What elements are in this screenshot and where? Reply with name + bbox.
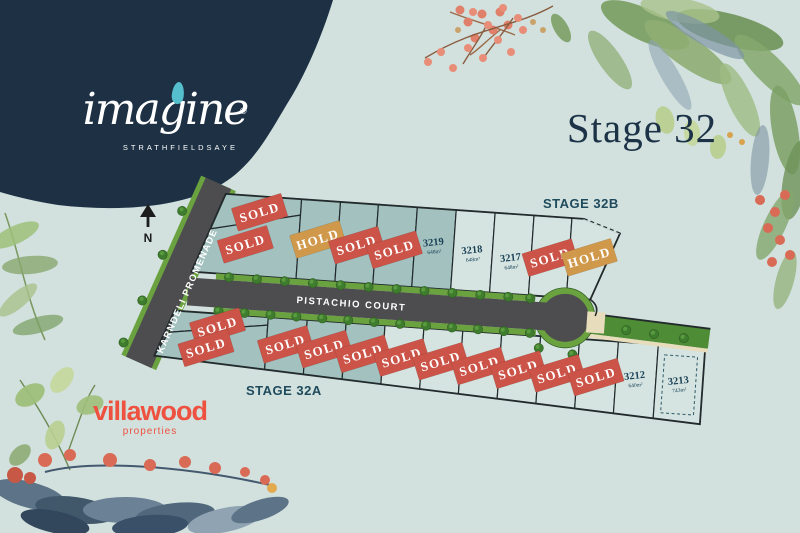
berry-illustration bbox=[7, 467, 23, 483]
masterplan-svg: PISTACHIO COURTKARNDELI PROMENADESOLDSOL… bbox=[109, 173, 766, 487]
leaf-illustration bbox=[0, 278, 42, 321]
leaf-illustration bbox=[0, 216, 42, 254]
berry-illustration bbox=[449, 64, 457, 72]
berry-illustration bbox=[739, 139, 745, 145]
berry-illustration bbox=[494, 36, 502, 44]
svg-text:3219: 3219 bbox=[422, 236, 444, 249]
berry-illustration bbox=[504, 21, 513, 30]
svg-text:3217: 3217 bbox=[500, 252, 522, 265]
berry-illustration bbox=[469, 8, 477, 16]
berry-illustration bbox=[499, 4, 507, 12]
developer-logo: villawood properties bbox=[90, 398, 210, 437]
floral-left-edge bbox=[0, 205, 70, 345]
berry-illustration bbox=[519, 26, 527, 34]
svg-text:3212: 3212 bbox=[624, 370, 646, 383]
berry-illustration bbox=[767, 257, 777, 267]
berry-illustration bbox=[540, 27, 546, 33]
leaf-illustration bbox=[639, 0, 722, 29]
berry-illustration bbox=[424, 58, 432, 66]
svg-text:3218: 3218 bbox=[461, 244, 483, 257]
leaf-illustration bbox=[642, 36, 698, 114]
berry-illustration bbox=[144, 459, 156, 471]
leaf-illustration bbox=[748, 124, 772, 195]
berry-illustration bbox=[471, 34, 480, 43]
leaf-illustration bbox=[776, 139, 800, 222]
developer-name: villawood bbox=[90, 398, 210, 425]
leaf-illustration bbox=[637, 10, 739, 94]
leaf-illustration bbox=[11, 311, 65, 340]
berry-illustration bbox=[484, 21, 492, 29]
berry-illustration bbox=[514, 14, 522, 22]
berry-illustration bbox=[456, 6, 465, 15]
leaf-illustration bbox=[18, 504, 91, 533]
berry-illustration bbox=[530, 19, 536, 25]
berry-illustration bbox=[489, 26, 498, 35]
leaf-illustration bbox=[34, 492, 117, 529]
leaf-illustration bbox=[673, 0, 788, 59]
berry-illustration bbox=[260, 475, 270, 485]
leaf-illustration bbox=[661, 4, 749, 66]
berry-illustration bbox=[24, 472, 36, 484]
berry-illustration bbox=[775, 235, 785, 245]
berry-illustration bbox=[437, 48, 445, 56]
floral-top-center bbox=[393, 0, 573, 72]
masterplan: PISTACHIO COURTKARNDELI PROMENADESOLDSOL… bbox=[109, 173, 766, 487]
leaf-illustration bbox=[547, 11, 575, 46]
berry-illustration bbox=[64, 449, 76, 461]
berry-illustration bbox=[240, 467, 250, 477]
berry-illustration bbox=[507, 48, 515, 56]
berry-illustration bbox=[770, 207, 780, 217]
berry-illustration bbox=[755, 195, 765, 205]
berry-illustration bbox=[785, 250, 795, 260]
berry-illustration bbox=[209, 462, 221, 474]
leaf-illustration bbox=[185, 500, 264, 533]
berry-illustration bbox=[478, 10, 487, 19]
berry-illustration bbox=[464, 18, 473, 27]
leaf-illustration bbox=[228, 491, 291, 529]
leaf-illustration bbox=[111, 512, 188, 533]
leaf-illustration bbox=[1, 254, 58, 277]
berry-illustration bbox=[464, 44, 472, 52]
berry-illustration bbox=[38, 453, 52, 467]
leaf-illustration bbox=[41, 418, 68, 452]
leaf-illustration bbox=[769, 249, 800, 312]
leaf-illustration bbox=[83, 497, 167, 523]
leaf-illustration bbox=[0, 473, 70, 518]
leaf-illustration bbox=[5, 440, 35, 470]
svg-text:3213: 3213 bbox=[667, 375, 689, 388]
leaf-illustration bbox=[581, 25, 639, 95]
berry-illustration bbox=[496, 8, 505, 17]
leaf-illustration bbox=[11, 378, 49, 411]
berry-illustration bbox=[179, 456, 191, 468]
leaf-illustration bbox=[134, 499, 216, 531]
leaf-illustration bbox=[726, 26, 800, 114]
estate-flyer: imagine ® STRATHFIELDSAYE Stage 32 STAGE… bbox=[0, 0, 800, 533]
leaf-illustration bbox=[45, 363, 78, 398]
page-title: Stage 32 bbox=[552, 104, 732, 152]
berry-illustration bbox=[103, 453, 117, 467]
berry-illustration bbox=[455, 27, 461, 33]
developer-tagline: properties bbox=[90, 426, 210, 437]
leaf-illustration bbox=[764, 83, 800, 176]
leaf-illustration bbox=[595, 0, 696, 60]
berry-illustration bbox=[780, 190, 790, 200]
berry-illustration bbox=[479, 54, 487, 62]
berry-illustration bbox=[267, 483, 277, 493]
